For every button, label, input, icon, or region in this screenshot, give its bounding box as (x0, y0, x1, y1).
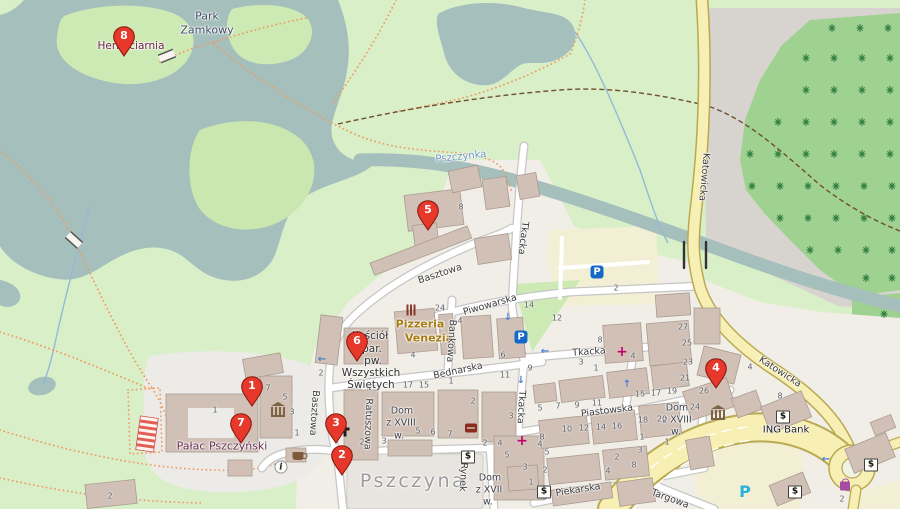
marker-number: 4 (705, 361, 728, 374)
map-marker-8[interactable]: 8 (113, 26, 136, 57)
marker-number: 6 (346, 334, 369, 347)
marker-number: 7 (230, 416, 253, 429)
marker-number: 8 (113, 29, 136, 42)
map-marker-2[interactable]: 2 (331, 445, 354, 476)
marker-number: 3 (325, 416, 348, 429)
map-canvas[interactable]: ParkZamkowyHerbaciarniaPszczynkaPizzeria… (0, 0, 900, 509)
map-marker-5[interactable]: 5 (417, 200, 440, 231)
marker-number: 1 (241, 379, 264, 392)
markers-layer: 1 2 3 4 5 6 (0, 0, 900, 509)
map-marker-3[interactable]: 3 (325, 413, 348, 444)
map-marker-6[interactable]: 6 (346, 331, 369, 362)
map-marker-4[interactable]: 4 (705, 358, 728, 389)
marker-number: 5 (417, 203, 440, 216)
map-marker-7[interactable]: 7 (230, 413, 253, 444)
marker-number: 2 (331, 448, 354, 461)
map-marker-1[interactable]: 1 (241, 376, 264, 407)
